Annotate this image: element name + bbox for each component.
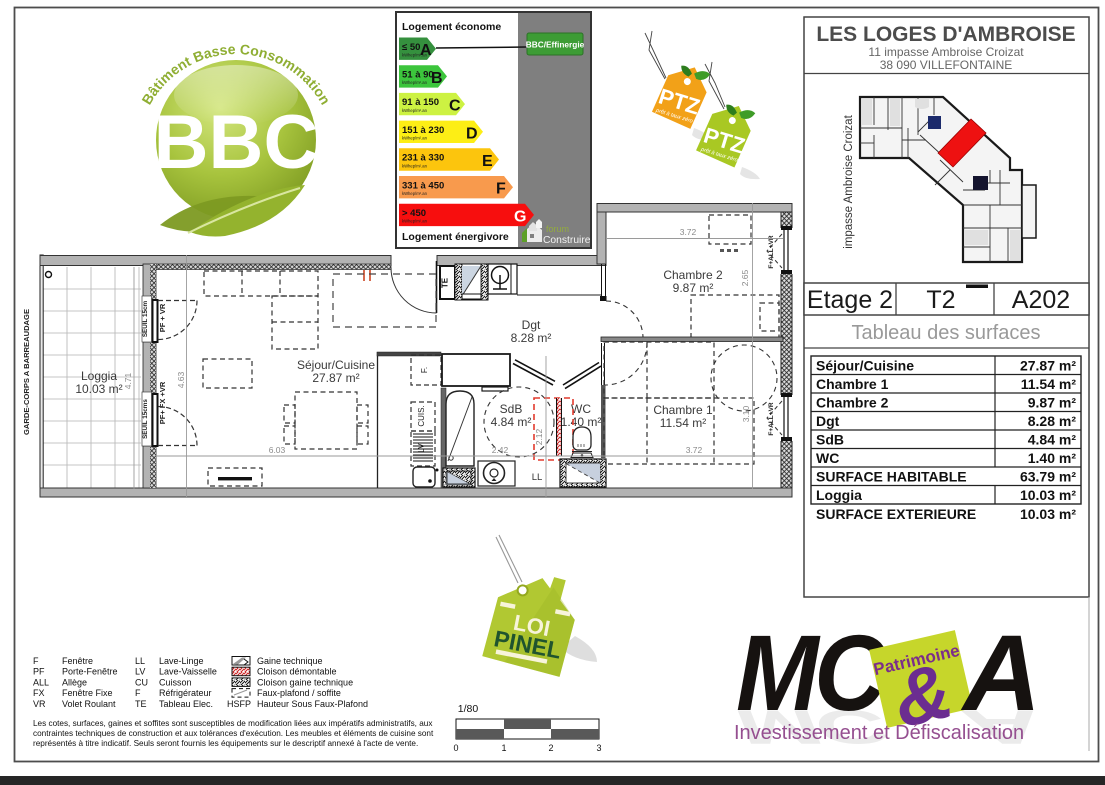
svg-text:LV: LV: [135, 667, 145, 677]
svg-text:LL: LL: [135, 656, 145, 666]
svg-text:Tableau des surfaces: Tableau des surfaces: [851, 322, 1040, 344]
svg-text:SEUIL 15cms: SEUIL 15cms: [142, 399, 149, 439]
svg-text:Fenêtre Fixe: Fenêtre Fixe: [62, 688, 113, 698]
svg-text:Lave-Vaisselle: Lave-Vaisselle: [159, 667, 217, 677]
svg-text:0: 0: [453, 743, 458, 753]
svg-text:3.10: 3.10: [741, 405, 751, 422]
svg-text:151 à 230: 151 à 230: [402, 125, 444, 136]
svg-text:Lave-Linge: Lave-Linge: [159, 656, 204, 666]
svg-text:WC: WC: [571, 402, 591, 416]
svg-text:Séjour/Cuisine: Séjour/Cuisine: [297, 358, 375, 372]
svg-text:SURFACE HABITABLE: SURFACE HABITABLE: [816, 469, 967, 485]
svg-text:kWhep/m².an: kWhep/m².an: [402, 80, 428, 85]
svg-text:kWhep/m².an: kWhep/m².an: [402, 136, 428, 141]
svg-text:Hauteur Sous Faux-Plafond: Hauteur Sous Faux-Plafond: [257, 699, 368, 709]
svg-text:SURFACE EXTERIEURE: SURFACE EXTERIEURE: [816, 506, 976, 522]
svg-text:8.28 m²: 8.28 m²: [511, 331, 552, 345]
svg-text:9.87 m²: 9.87 m²: [673, 281, 714, 295]
svg-text:SEUIL 15cm: SEUIL 15cm: [142, 300, 149, 337]
svg-text:A202: A202: [1012, 286, 1070, 314]
svg-text:91 à 150: 91 à 150: [402, 97, 439, 108]
svg-text:MC: MC: [736, 612, 888, 733]
svg-text:8.28 m²: 8.28 m²: [1028, 413, 1077, 429]
svg-text:FX: FX: [33, 688, 45, 698]
svg-text:B: B: [431, 70, 443, 87]
svg-text:Chambre 2: Chambre 2: [816, 395, 889, 411]
svg-text:kWhep/m².an: kWhep/m².an: [402, 108, 428, 113]
svg-text:2.42: 2.42: [492, 445, 509, 455]
svg-text:10.03 m²: 10.03 m²: [1020, 506, 1076, 522]
svg-text:6.03: 6.03: [269, 445, 286, 455]
svg-text:impasse Ambroise Croizat: impasse Ambroise Croizat: [843, 114, 855, 248]
svg-text:Cloison gaine technique: Cloison gaine technique: [257, 677, 353, 687]
svg-text:Logement énergivore: Logement énergivore: [402, 231, 509, 243]
svg-text:WC: WC: [816, 450, 839, 466]
svg-text:F: F: [496, 181, 506, 198]
svg-text:A: A: [960, 612, 1041, 733]
svg-text:4.63: 4.63: [176, 371, 186, 388]
svg-text:Investissement et Défiscalisat: Investissement et Défiscalisation: [734, 722, 1024, 744]
svg-text:PF: PF: [33, 667, 45, 677]
svg-text:Les cotes, surfaces, gaines et: Les cotes, surfaces, gaines et soffites …: [33, 719, 432, 728]
svg-text:Réfrigérateur: Réfrigérateur: [159, 688, 212, 698]
svg-text:CUIS.: CUIS.: [417, 405, 426, 426]
svg-text:Dgt: Dgt: [816, 413, 840, 429]
svg-text:Cuisson: Cuisson: [159, 677, 192, 687]
svg-text:Tableau Elec.: Tableau Elec.: [159, 699, 213, 709]
svg-text:contraintes techniques de cons: contraintes techniques de construction e…: [33, 729, 434, 738]
svg-text:F.: F.: [420, 367, 429, 373]
svg-text:F: F: [33, 656, 39, 666]
svg-text:G: G: [514, 208, 526, 225]
svg-text:≤ 50: ≤ 50: [402, 42, 420, 53]
svg-text:SdB: SdB: [816, 432, 844, 448]
svg-text:1: 1: [501, 743, 506, 753]
svg-text:forum: forum: [546, 224, 569, 234]
svg-text:VR: VR: [33, 699, 46, 709]
svg-text:C: C: [449, 98, 461, 115]
svg-text:F+ALL+VR: F+ALL+VR: [768, 235, 775, 269]
svg-text:kWhep/m².an: kWhep/m².an: [402, 191, 428, 196]
svg-text:4.84 m²: 4.84 m²: [491, 415, 532, 429]
svg-text:> 450: > 450: [402, 208, 426, 219]
svg-text:Volet Roulant: Volet Roulant: [62, 699, 116, 709]
svg-text:kWhep/m².an: kWhep/m².an: [402, 219, 428, 224]
svg-text:2: 2: [548, 743, 553, 753]
svg-text:ALL: ALL: [33, 677, 49, 687]
svg-text:BBC/Effinergie: BBC/Effinergie: [526, 40, 585, 50]
svg-text:2.65: 2.65: [740, 269, 750, 286]
svg-text:BBC: BBC: [154, 100, 319, 185]
svg-text:GARDE-CORPS A BARREAUDAGE: GARDE-CORPS A BARREAUDAGE: [22, 309, 31, 435]
svg-text:LL: LL: [532, 472, 543, 483]
svg-text:10.03 m²: 10.03 m²: [1020, 487, 1076, 503]
svg-text:HSFP: HSFP: [227, 699, 251, 709]
svg-text:Chambre 1: Chambre 1: [816, 376, 889, 392]
svg-text:Cloison démontable: Cloison démontable: [257, 667, 337, 677]
svg-text:Allège: Allège: [62, 677, 87, 687]
svg-text:11 impasse Ambroise Croizat: 11 impasse Ambroise Croizat: [868, 45, 1024, 59]
svg-text:27.87 m²: 27.87 m²: [1020, 358, 1076, 374]
svg-text:A: A: [420, 42, 432, 59]
svg-text:Logement économe: Logement économe: [402, 21, 501, 33]
svg-text:SdB: SdB: [500, 402, 523, 416]
svg-text:Chambre 1: Chambre 1: [653, 403, 713, 417]
svg-text:9.87 m²: 9.87 m²: [1028, 395, 1077, 411]
svg-text:PF + VR: PF + VR: [158, 303, 167, 332]
svg-text:3: 3: [596, 743, 601, 753]
svg-text:T2: T2: [926, 286, 955, 314]
svg-text:Fenêtre: Fenêtre: [62, 656, 93, 666]
svg-text:LES LOGES D'AMBROISE: LES LOGES D'AMBROISE: [816, 23, 1075, 46]
svg-text:Chambre 2: Chambre 2: [663, 268, 723, 282]
svg-text:Dgt: Dgt: [522, 318, 541, 332]
svg-text:1.40 m²: 1.40 m²: [1028, 450, 1077, 466]
svg-text:51 à 90: 51 à 90: [402, 70, 434, 81]
svg-text:TE: TE: [135, 699, 147, 709]
svg-text:Loggia: Loggia: [81, 369, 117, 383]
svg-text:représentés à titre indicatif.: représentés à titre indicatif. Seuls ser…: [33, 739, 418, 748]
svg-text:CU: CU: [135, 677, 148, 687]
svg-text:Loggia: Loggia: [816, 487, 862, 503]
svg-text:10.03 m²: 10.03 m²: [75, 382, 122, 396]
svg-text:11.54 m²: 11.54 m²: [660, 416, 706, 430]
svg-text:Construire: Construire: [543, 235, 591, 246]
svg-text:11.54 m²: 11.54 m²: [1021, 376, 1077, 392]
svg-text:F: F: [135, 688, 141, 698]
svg-text:331 à 450: 331 à 450: [402, 180, 444, 191]
svg-text:Gaine technique: Gaine technique: [257, 656, 323, 666]
svg-text:LV: LV: [417, 443, 426, 453]
svg-text:38 090 VILLEFONTAINE: 38 090 VILLEFONTAINE: [880, 58, 1013, 72]
svg-text:kWhep/m².an: kWhep/m².an: [402, 163, 428, 168]
svg-text:27.87 m²: 27.87 m²: [312, 371, 359, 385]
svg-text:231 à 330: 231 à 330: [402, 153, 444, 164]
svg-text:PF+ FX +VR: PF+ FX +VR: [158, 381, 167, 424]
svg-text:F+ALL+VR: F+ALL+VR: [768, 402, 775, 436]
svg-text:E: E: [482, 153, 493, 170]
svg-text:4.71: 4.71: [123, 372, 133, 389]
svg-text:3.72: 3.72: [680, 227, 697, 237]
svg-text:Porte-Fenêtre: Porte-Fenêtre: [62, 667, 118, 677]
svg-text:TE: TE: [441, 277, 450, 288]
svg-text:Etage 2: Etage 2: [807, 286, 893, 314]
svg-text:3.72: 3.72: [686, 445, 703, 455]
svg-text:4.84 m²: 4.84 m²: [1028, 432, 1077, 448]
svg-text:63.79 m²: 63.79 m²: [1020, 469, 1076, 485]
svg-text:1/80: 1/80: [458, 703, 479, 715]
svg-text:D: D: [466, 125, 478, 142]
svg-text:Faux-plafond / soffite: Faux-plafond / soffite: [257, 688, 341, 698]
svg-text:2.12: 2.12: [534, 428, 544, 445]
svg-text:Séjour/Cuisine: Séjour/Cuisine: [816, 358, 914, 374]
